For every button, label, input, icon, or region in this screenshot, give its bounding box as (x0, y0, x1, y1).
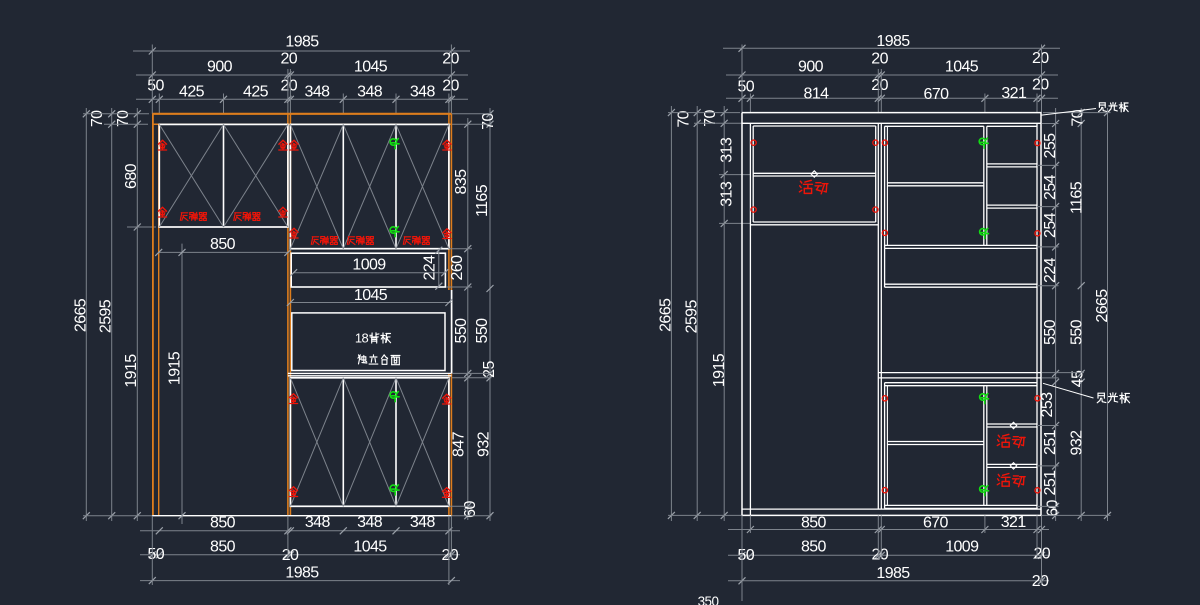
svg-text:348: 348 (357, 514, 383, 531)
svg-text:70: 70 (480, 113, 497, 130)
svg-text:2665: 2665 (73, 298, 90, 332)
svg-text:2595: 2595 (98, 299, 115, 333)
svg-text:550: 550 (1069, 319, 1086, 345)
svg-text:1009: 1009 (352, 257, 386, 274)
svg-text:20: 20 (442, 77, 459, 94)
svg-text:313: 313 (718, 181, 735, 207)
svg-text:50: 50 (737, 547, 754, 564)
svg-text:550: 550 (474, 318, 491, 344)
svg-text:348: 348 (410, 84, 436, 101)
svg-text:253: 253 (1039, 392, 1056, 418)
svg-text:321: 321 (1001, 85, 1027, 102)
svg-text:932: 932 (475, 431, 492, 457)
svg-text:20: 20 (1032, 76, 1049, 93)
svg-text:1985: 1985 (876, 33, 910, 50)
svg-text:348: 348 (357, 84, 383, 101)
svg-text:251: 251 (1042, 470, 1059, 496)
svg-text:835: 835 (453, 169, 470, 195)
svg-text:50: 50 (147, 77, 164, 94)
svg-text:224: 224 (421, 255, 438, 281)
svg-text:254: 254 (1042, 212, 1059, 238)
svg-text:20: 20 (280, 77, 297, 94)
svg-text:1915: 1915 (167, 351, 184, 385)
svg-text:1915: 1915 (123, 354, 140, 388)
svg-text:932: 932 (1069, 430, 1086, 456)
svg-text:1165: 1165 (474, 184, 491, 217)
svg-text:260: 260 (449, 255, 466, 281)
svg-text:255: 255 (1042, 133, 1059, 159)
svg-text:348: 348 (410, 514, 436, 531)
svg-text:50: 50 (147, 546, 164, 563)
svg-text:348: 348 (305, 84, 331, 101)
svg-text:224: 224 (1042, 257, 1059, 283)
svg-text:254: 254 (1042, 174, 1059, 200)
svg-text:1985: 1985 (285, 565, 319, 582)
svg-text:20: 20 (441, 547, 458, 564)
svg-text:20: 20 (280, 51, 297, 68)
svg-text:850: 850 (801, 515, 827, 532)
svg-text:550: 550 (453, 318, 470, 344)
svg-text:1985: 1985 (876, 565, 910, 582)
svg-text:1165: 1165 (1069, 181, 1086, 214)
svg-text:850: 850 (210, 539, 236, 556)
svg-text:900: 900 (798, 59, 824, 76)
svg-text:1009: 1009 (945, 538, 979, 555)
svg-text:20: 20 (282, 547, 299, 564)
svg-text:2595: 2595 (683, 300, 700, 334)
svg-text:321: 321 (1001, 514, 1027, 531)
svg-text:348: 348 (305, 514, 331, 531)
svg-text:313: 313 (718, 137, 735, 163)
svg-text:20: 20 (871, 77, 888, 94)
svg-text:20: 20 (871, 546, 888, 563)
svg-text:1045: 1045 (945, 59, 979, 76)
svg-text:1045: 1045 (354, 59, 388, 76)
svg-text:425: 425 (179, 83, 205, 100)
svg-text:20: 20 (1033, 545, 1050, 562)
svg-text:1045: 1045 (354, 287, 388, 304)
svg-text:2665: 2665 (1094, 289, 1111, 323)
svg-text:425: 425 (243, 83, 269, 100)
svg-text:18: 18 (355, 331, 369, 346)
svg-text:850: 850 (210, 515, 236, 532)
svg-text:550: 550 (1042, 319, 1059, 345)
svg-text:670: 670 (924, 86, 950, 103)
svg-text:70: 70 (89, 110, 106, 127)
svg-text:1985: 1985 (285, 34, 319, 51)
svg-text:251: 251 (1042, 429, 1059, 455)
svg-text:60: 60 (1044, 500, 1061, 517)
svg-text:20: 20 (442, 51, 459, 68)
svg-text:850: 850 (210, 236, 236, 253)
svg-text:1915: 1915 (711, 353, 728, 387)
svg-text:850: 850 (801, 539, 827, 556)
svg-text:814: 814 (804, 85, 830, 102)
svg-text:670: 670 (923, 515, 949, 532)
svg-text:350: 350 (698, 594, 719, 605)
svg-text:847: 847 (450, 431, 467, 457)
svg-text:1045: 1045 (353, 539, 387, 556)
svg-text:2665: 2665 (658, 298, 675, 332)
svg-text:20: 20 (871, 51, 888, 68)
svg-text:900: 900 (207, 59, 233, 76)
svg-text:50: 50 (737, 78, 754, 95)
svg-text:680: 680 (123, 163, 140, 189)
svg-text:20: 20 (1032, 50, 1049, 67)
svg-text:25: 25 (481, 361, 498, 378)
svg-text:20: 20 (1032, 573, 1049, 590)
